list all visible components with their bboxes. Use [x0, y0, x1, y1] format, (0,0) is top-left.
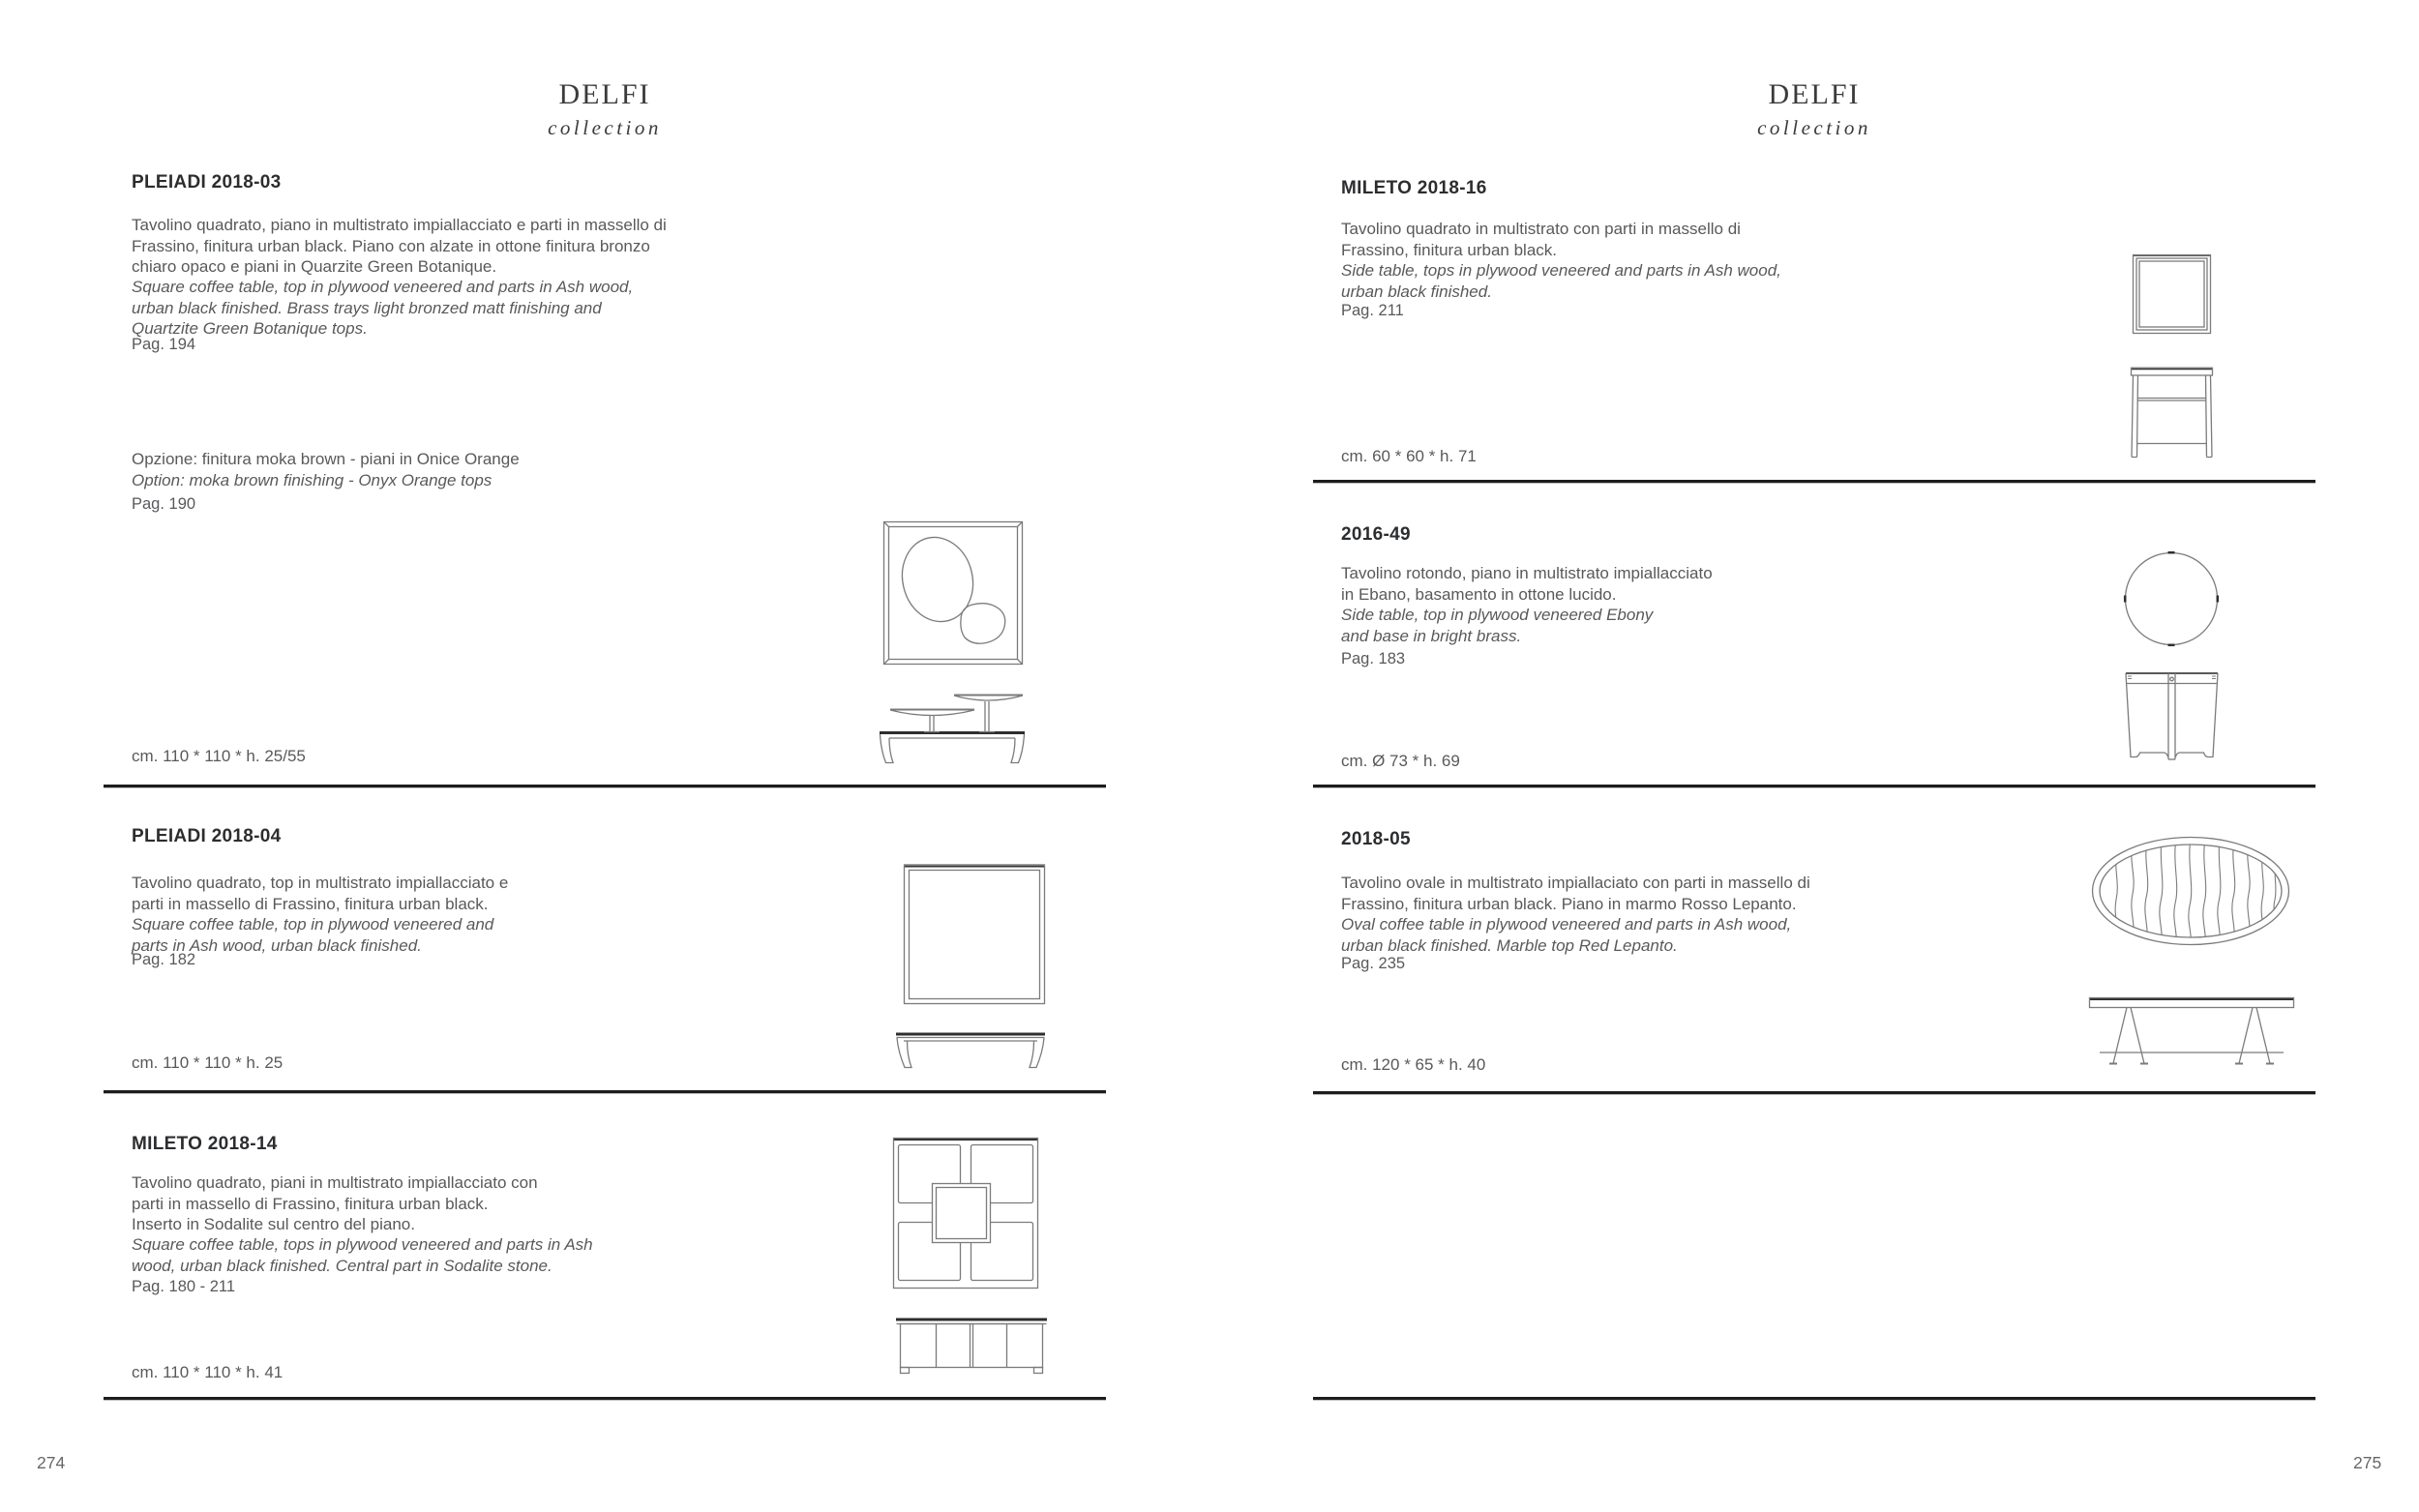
- description-en: Square coffee table, top in plywood vene…: [132, 914, 493, 956]
- option-page-reference: Pag. 190: [132, 495, 195, 514]
- description-it: Tavolino quadrato, piano in multistrato …: [132, 215, 667, 278]
- page-reference: Pag. 211: [1341, 302, 1404, 320]
- description-en: Side table, top in plywood veneered Ebon…: [1341, 605, 1653, 646]
- drawing-side-view-low-table-two-trays: [879, 689, 1026, 764]
- page-number-left: 274: [37, 1453, 65, 1473]
- description-it: Tavolino quadrato, top in multistrato im…: [132, 873, 508, 914]
- collection-subtitle: collection: [1313, 118, 2315, 138]
- drawing-top-view-small-square: [2132, 253, 2212, 335]
- product-code: PLEIADI 2018-03: [132, 172, 281, 193]
- option-note-en: Option: moka brown finishing - Onyx Oran…: [132, 470, 492, 491]
- drawing-top-view-square-grid-inset: [892, 1137, 1039, 1290]
- page-left: DELFI collection PLEIADI 2018-03 Tavolin…: [104, 0, 1106, 1512]
- drawing-top-view-square-with-trays: [882, 520, 1024, 666]
- product-code: 2018-05: [1341, 829, 1411, 850]
- dimensions: cm. 110 * 110 * h. 41: [132, 1363, 283, 1382]
- drawing-top-view-round-table: [2123, 550, 2220, 647]
- dimensions: cm. 110 * 110 * h. 25: [132, 1053, 283, 1073]
- dimensions: cm. 120 * 65 * h. 40: [1341, 1055, 1485, 1075]
- page-number-right: 275: [2353, 1453, 2381, 1473]
- page-reference: Pag. 235: [1341, 955, 1405, 973]
- page-header: DELFI collection: [104, 80, 1106, 138]
- description-it: Tavolino rotondo, piano in multistrato i…: [1341, 563, 1713, 605]
- dimensions: cm. 110 * 110 * h. 25/55: [132, 747, 306, 766]
- product-code: MILETO 2018-14: [132, 1134, 278, 1155]
- dimensions: cm. 60 * 60 * h. 71: [1341, 447, 1477, 466]
- option-note-it: Opzione: finitura moka brown - piani in …: [132, 449, 520, 470]
- drawing-side-view-oval-table-legs: [2088, 996, 2295, 1068]
- product-code: PLEIADI 2018-04: [132, 826, 281, 847]
- page-header: DELFI collection: [1313, 80, 2315, 138]
- description-it: Tavolino ovale in multistrato impiallaci…: [1341, 873, 1810, 914]
- divider-rule: [1313, 785, 2315, 788]
- drawing-side-view-side-table-shelf: [2130, 367, 2214, 460]
- divider-rule: [1313, 480, 2315, 484]
- product-code: 2016-49: [1341, 524, 1411, 546]
- catalog-spread: DELFI collection PLEIADI 2018-03 Tavolin…: [0, 0, 2419, 1512]
- product-code: MILETO 2018-16: [1341, 178, 1487, 199]
- collection-title: DELFI: [1313, 80, 2315, 109]
- divider-rule: [104, 785, 1106, 788]
- drawing-top-view-oval-marble: [2090, 836, 2291, 946]
- description-en: Side table, tops in plywood veneered and…: [1341, 260, 1781, 302]
- page-reference: Pag. 194: [132, 336, 195, 354]
- collection-title: DELFI: [104, 80, 1106, 109]
- page-reference: Pag. 182: [132, 951, 195, 969]
- drawing-side-view-drum-base: [2122, 671, 2222, 763]
- description-it: Tavolino quadrato in multistrato con par…: [1341, 219, 1741, 260]
- drawing-side-view-low-table: [895, 1031, 1046, 1070]
- divider-rule: [104, 1090, 1106, 1094]
- divider-rule: [104, 1397, 1106, 1401]
- drawing-side-view-paneled-table: [895, 1318, 1048, 1376]
- page-reference: Pag. 180 - 211: [132, 1278, 235, 1296]
- page-reference: Pag. 183: [1341, 650, 1405, 668]
- dimensions: cm. Ø 73 * h. 69: [1341, 752, 1460, 771]
- description-it: Tavolino quadrato, piani in multistrato …: [132, 1172, 538, 1235]
- description-en: Square coffee table, top in plywood vene…: [132, 277, 633, 340]
- page-right: DELFI collection MILETO 2018-16 Tavolino…: [1313, 0, 2315, 1512]
- description-en: Square coffee table, tops in plywood ven…: [132, 1234, 593, 1276]
- divider-rule: [1313, 1091, 2315, 1095]
- drawing-top-view-square: [903, 864, 1046, 1005]
- description-en: Oval coffee table in plywood veneered an…: [1341, 914, 1791, 956]
- divider-rule: [1313, 1397, 2315, 1401]
- collection-subtitle: collection: [104, 118, 1106, 138]
